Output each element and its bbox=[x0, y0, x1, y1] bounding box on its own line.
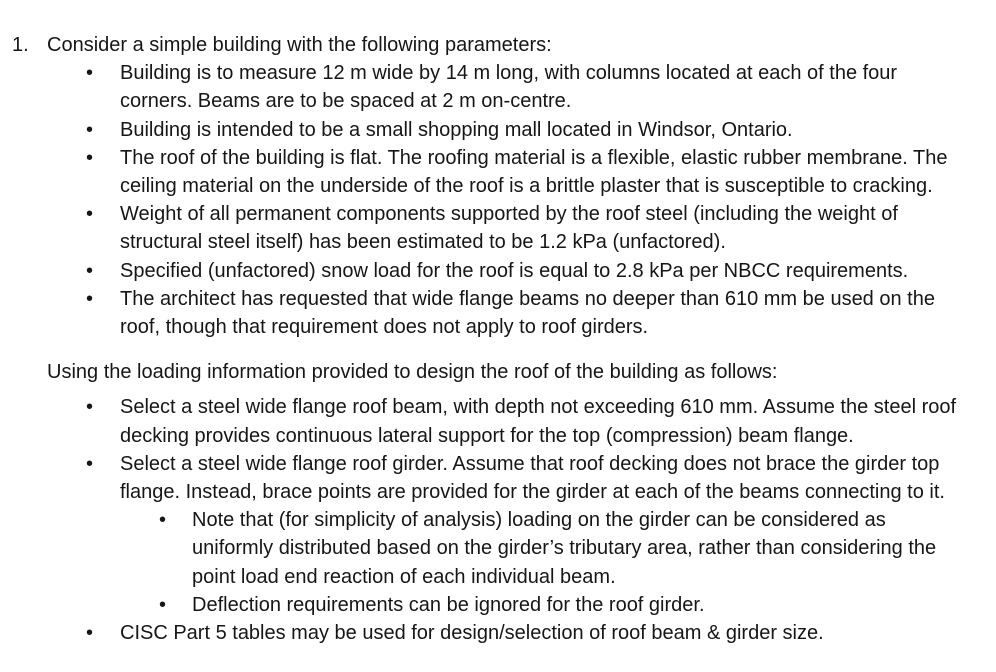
tasks-list: • Select a steel wide flange roof beam, … bbox=[12, 393, 996, 647]
bullet-icon: • bbox=[86, 619, 93, 647]
bullet-icon: • bbox=[86, 200, 93, 228]
problem-number: 1. bbox=[12, 31, 47, 59]
parameter-text: Building is intended to be a small shopp… bbox=[120, 119, 793, 141]
list-item: • Deflection requirements can be ignored… bbox=[192, 591, 967, 619]
list-item: • Weight of all permanent components sup… bbox=[120, 200, 957, 256]
task-text: Select a steel wide flange roof girder. … bbox=[120, 453, 945, 503]
parameter-text: Weight of all permanent components suppo… bbox=[120, 203, 898, 253]
list-item: • Select a steel wide flange roof beam, … bbox=[120, 393, 957, 449]
bullet-icon: • bbox=[86, 59, 93, 87]
list-item: • The architect has requested that wide … bbox=[120, 285, 957, 341]
list-item: • The roof of the building is flat. The … bbox=[120, 144, 957, 200]
bullet-icon: • bbox=[86, 450, 93, 478]
bullet-icon: • bbox=[86, 285, 93, 313]
bullet-icon: • bbox=[86, 393, 93, 421]
problem-intro: Consider a simple building with the foll… bbox=[47, 31, 552, 59]
bullet-icon: • bbox=[159, 591, 166, 619]
task-subitems-list: • Note that (for simplicity of analysis)… bbox=[120, 506, 957, 619]
subtask-text: Note that (for simplicity of analysis) l… bbox=[192, 509, 936, 587]
bullet-icon: • bbox=[159, 506, 166, 534]
list-item: • Building is intended to be a small sho… bbox=[120, 116, 957, 144]
parameter-text: Specified (unfactored) snow load for the… bbox=[120, 260, 908, 282]
task-text: CISC Part 5 tables may be used for desig… bbox=[120, 622, 824, 644]
parameter-text: The roof of the building is flat. The ro… bbox=[120, 147, 947, 197]
parameter-text: The architect has requested that wide fl… bbox=[120, 288, 935, 338]
problem-heading: 1. Consider a simple building with the f… bbox=[12, 31, 996, 59]
subtask-text: Deflection requirements can be ignored f… bbox=[192, 594, 705, 616]
bullet-icon: • bbox=[86, 144, 93, 172]
parameter-text: Building is to measure 12 m wide by 14 m… bbox=[120, 62, 897, 112]
parameters-list: • Building is to measure 12 m wide by 14… bbox=[12, 59, 996, 341]
list-item: • CISC Part 5 tables may be used for des… bbox=[120, 619, 957, 647]
list-item: • Building is to measure 12 m wide by 14… bbox=[120, 59, 957, 115]
bullet-icon: • bbox=[86, 257, 93, 285]
bullet-icon: • bbox=[86, 116, 93, 144]
task-intro: Using the loading information provided t… bbox=[47, 358, 996, 386]
list-item: • Select a steel wide flange roof girder… bbox=[120, 450, 957, 619]
task-text: Select a steel wide flange roof beam, wi… bbox=[120, 396, 956, 446]
list-item: • Note that (for simplicity of analysis)… bbox=[192, 506, 967, 591]
list-item: • Specified (unfactored) snow load for t… bbox=[120, 257, 957, 285]
document-page: 1. Consider a simple building with the f… bbox=[0, 0, 996, 672]
